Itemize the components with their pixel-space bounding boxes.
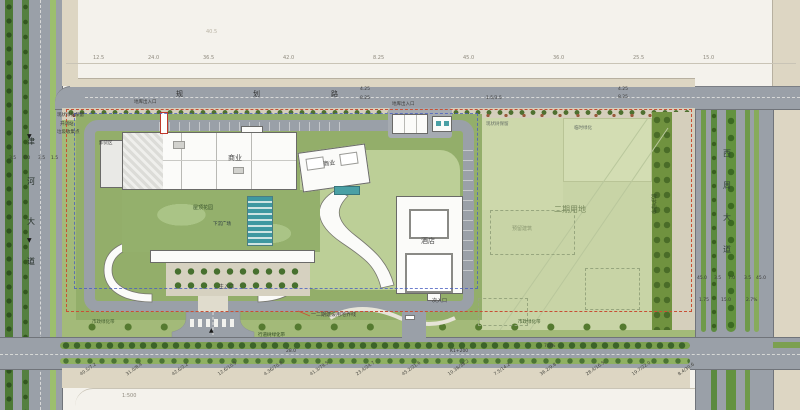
road-name-char: 道 (723, 246, 731, 254)
bottom-road-tree-row (60, 358, 690, 364)
roof-terrace (122, 190, 320, 252)
bottom-sidewalk (62, 368, 690, 388)
annotation: 8.25 (373, 56, 384, 61)
right-road-tree-strip (745, 96, 750, 332)
mall-partition (251, 133, 252, 189)
mall-annex (100, 140, 124, 188)
annotation: 36.0 (553, 56, 564, 61)
top-road-center-line (85, 97, 800, 98)
site-plan-canvas: 津河大道 西周大道 12.524.036.542.08.2545.036.025… (0, 0, 800, 410)
road-name-char: 大 (723, 214, 731, 222)
rooftop-unit (233, 167, 244, 174)
cooling-unit-box (432, 116, 452, 132)
road-name-char: 周 (723, 182, 731, 190)
south-canopy (150, 250, 315, 263)
vehicle (405, 315, 415, 320)
road-name-char: 大 (27, 218, 35, 226)
bottom-paper (75, 388, 695, 410)
ramp-sign (160, 112, 168, 134)
bottom-road-center-line (0, 354, 800, 355)
mall-partition (216, 133, 217, 189)
road-name-char: 道 (27, 258, 35, 266)
south-garden-path (330, 309, 455, 324)
bottom-road (0, 337, 800, 370)
skylight (305, 156, 324, 170)
right-road-name: 西周大道 (723, 150, 731, 254)
top-left-sidewalk-wedge (62, 0, 78, 86)
sunken-plaza-steps (247, 196, 273, 246)
rooftop-unit (173, 141, 185, 149)
right-road-median (726, 368, 736, 410)
mall-roof-notch (241, 126, 263, 133)
gatehouse-line (404, 115, 405, 133)
bottom-road-tree-row (773, 342, 800, 348)
annotation: 25.5 (633, 56, 644, 61)
gatehouse (392, 114, 428, 134)
top-road (55, 86, 800, 110)
annotation: 15.0 (703, 56, 714, 61)
road-name-char: 津 (27, 138, 35, 146)
annotation: 24.0 (148, 56, 159, 61)
right-road-tree-strip (711, 368, 717, 410)
annotation: 42.0 (283, 56, 294, 61)
courtyard (409, 209, 449, 239)
crosswalk (190, 319, 236, 327)
bottom-road-tree-row (60, 342, 690, 349)
cooling-cell (444, 121, 449, 126)
mall-main-building (122, 132, 297, 190)
right-road-tree-strip (701, 96, 706, 332)
left-road-name: 津河大道 (27, 138, 35, 266)
right-road-tree-strip (745, 368, 750, 410)
road-name-char: 河 (27, 178, 35, 186)
annotation: 12.5 (93, 56, 104, 61)
plaza-tree-row (172, 268, 304, 275)
plaza-tree-row (172, 282, 304, 289)
hotel-entry-tab (427, 293, 441, 301)
mall-service-hatch (123, 133, 163, 189)
dimension-line (66, 63, 796, 64)
top-sidewalk (70, 78, 695, 87)
reflecting-pool (334, 186, 360, 195)
field-diagonal (500, 118, 648, 330)
field-diagonal (530, 128, 668, 330)
annotation: 36.5 (203, 56, 214, 61)
curved-ramp (319, 190, 394, 288)
right-road-verge-strip (754, 96, 759, 332)
courtyard (405, 253, 453, 293)
hotel-building (396, 196, 463, 294)
right-road-tree-strip (711, 96, 717, 332)
gatehouse-line (416, 115, 417, 133)
skylight (339, 152, 358, 166)
cooling-cell (436, 121, 441, 126)
mall-corridor-line (163, 160, 296, 161)
annotation: 45.0 (463, 56, 474, 61)
boundary-leader (298, 311, 310, 316)
road-name-char: 西 (723, 150, 731, 158)
annotation: 40.5 (206, 30, 217, 35)
